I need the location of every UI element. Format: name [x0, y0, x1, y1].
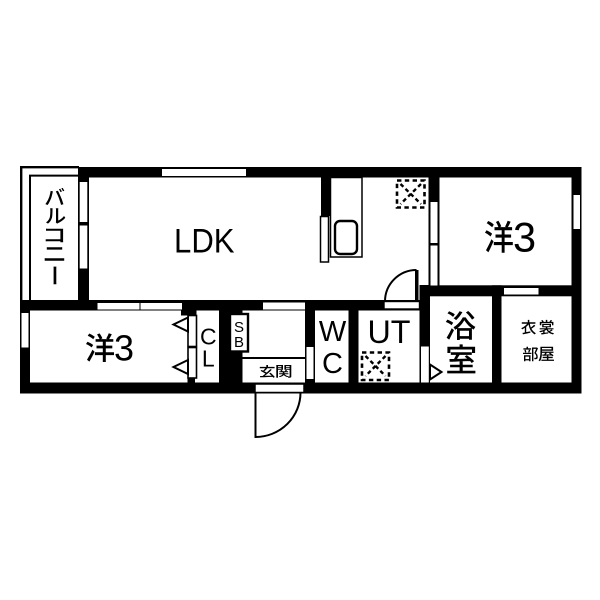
svg-text:UT: UT: [368, 314, 411, 350]
svg-text:3: 3: [114, 328, 134, 369]
svg-text:3: 3: [513, 213, 536, 260]
svg-text:LDK: LDK: [174, 222, 235, 260]
svg-text:B: B: [234, 334, 244, 351]
svg-text:W: W: [319, 316, 347, 348]
svg-text:L: L: [202, 346, 215, 372]
svg-text:C: C: [322, 348, 343, 380]
